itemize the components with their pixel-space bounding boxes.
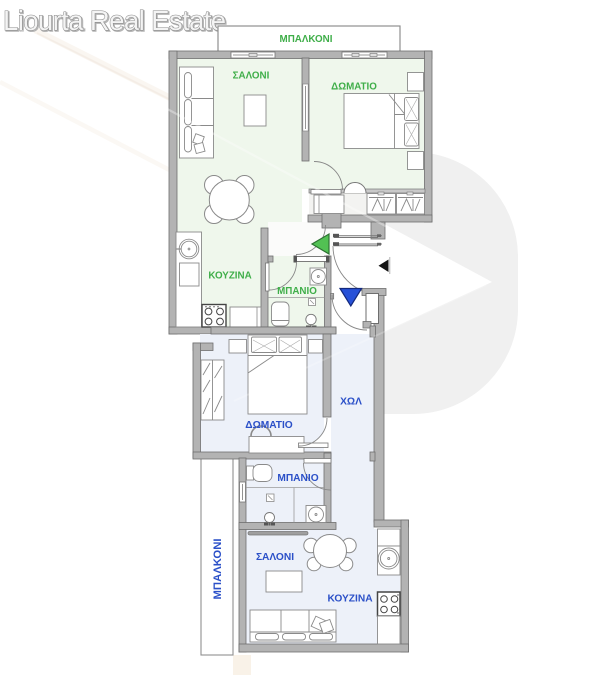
svg-text:ΣΑΛΟΝΙ: ΣΑΛΟΝΙ	[256, 552, 294, 563]
svg-text:ΜΠΑΛΚΟΝΙ: ΜΠΑΛΚΟΝΙ	[280, 34, 333, 45]
svg-text:ΚΟΥΖΙΝΑ: ΚΟΥΖΙΝΑ	[208, 271, 251, 282]
svg-text:ΜΠΑΛΚΟΝΙ: ΜΠΑΛΚΟΝΙ	[212, 539, 224, 600]
svg-text:ΚΟΥΖΙΝΑ: ΚΟΥΖΙΝΑ	[327, 594, 373, 605]
svg-text:ΜΠΑΝΙΟ: ΜΠΑΝΙΟ	[277, 286, 317, 297]
svg-text:ΜΠΑΝΙΟ: ΜΠΑΝΙΟ	[277, 473, 318, 484]
svg-text:Liourta Real Estate: Liourta Real Estate	[3, 5, 226, 36]
svg-text:ΔΩΜΑΤΙΟ: ΔΩΜΑΤΙΟ	[331, 82, 377, 93]
svg-text:ΣΑΛΟΝΙ: ΣΑΛΟΝΙ	[233, 71, 270, 82]
svg-text:ΧΩΛ: ΧΩΛ	[340, 397, 362, 408]
svg-text:ΔΩΜΑΤΙΟ: ΔΩΜΑΤΙΟ	[245, 420, 293, 431]
